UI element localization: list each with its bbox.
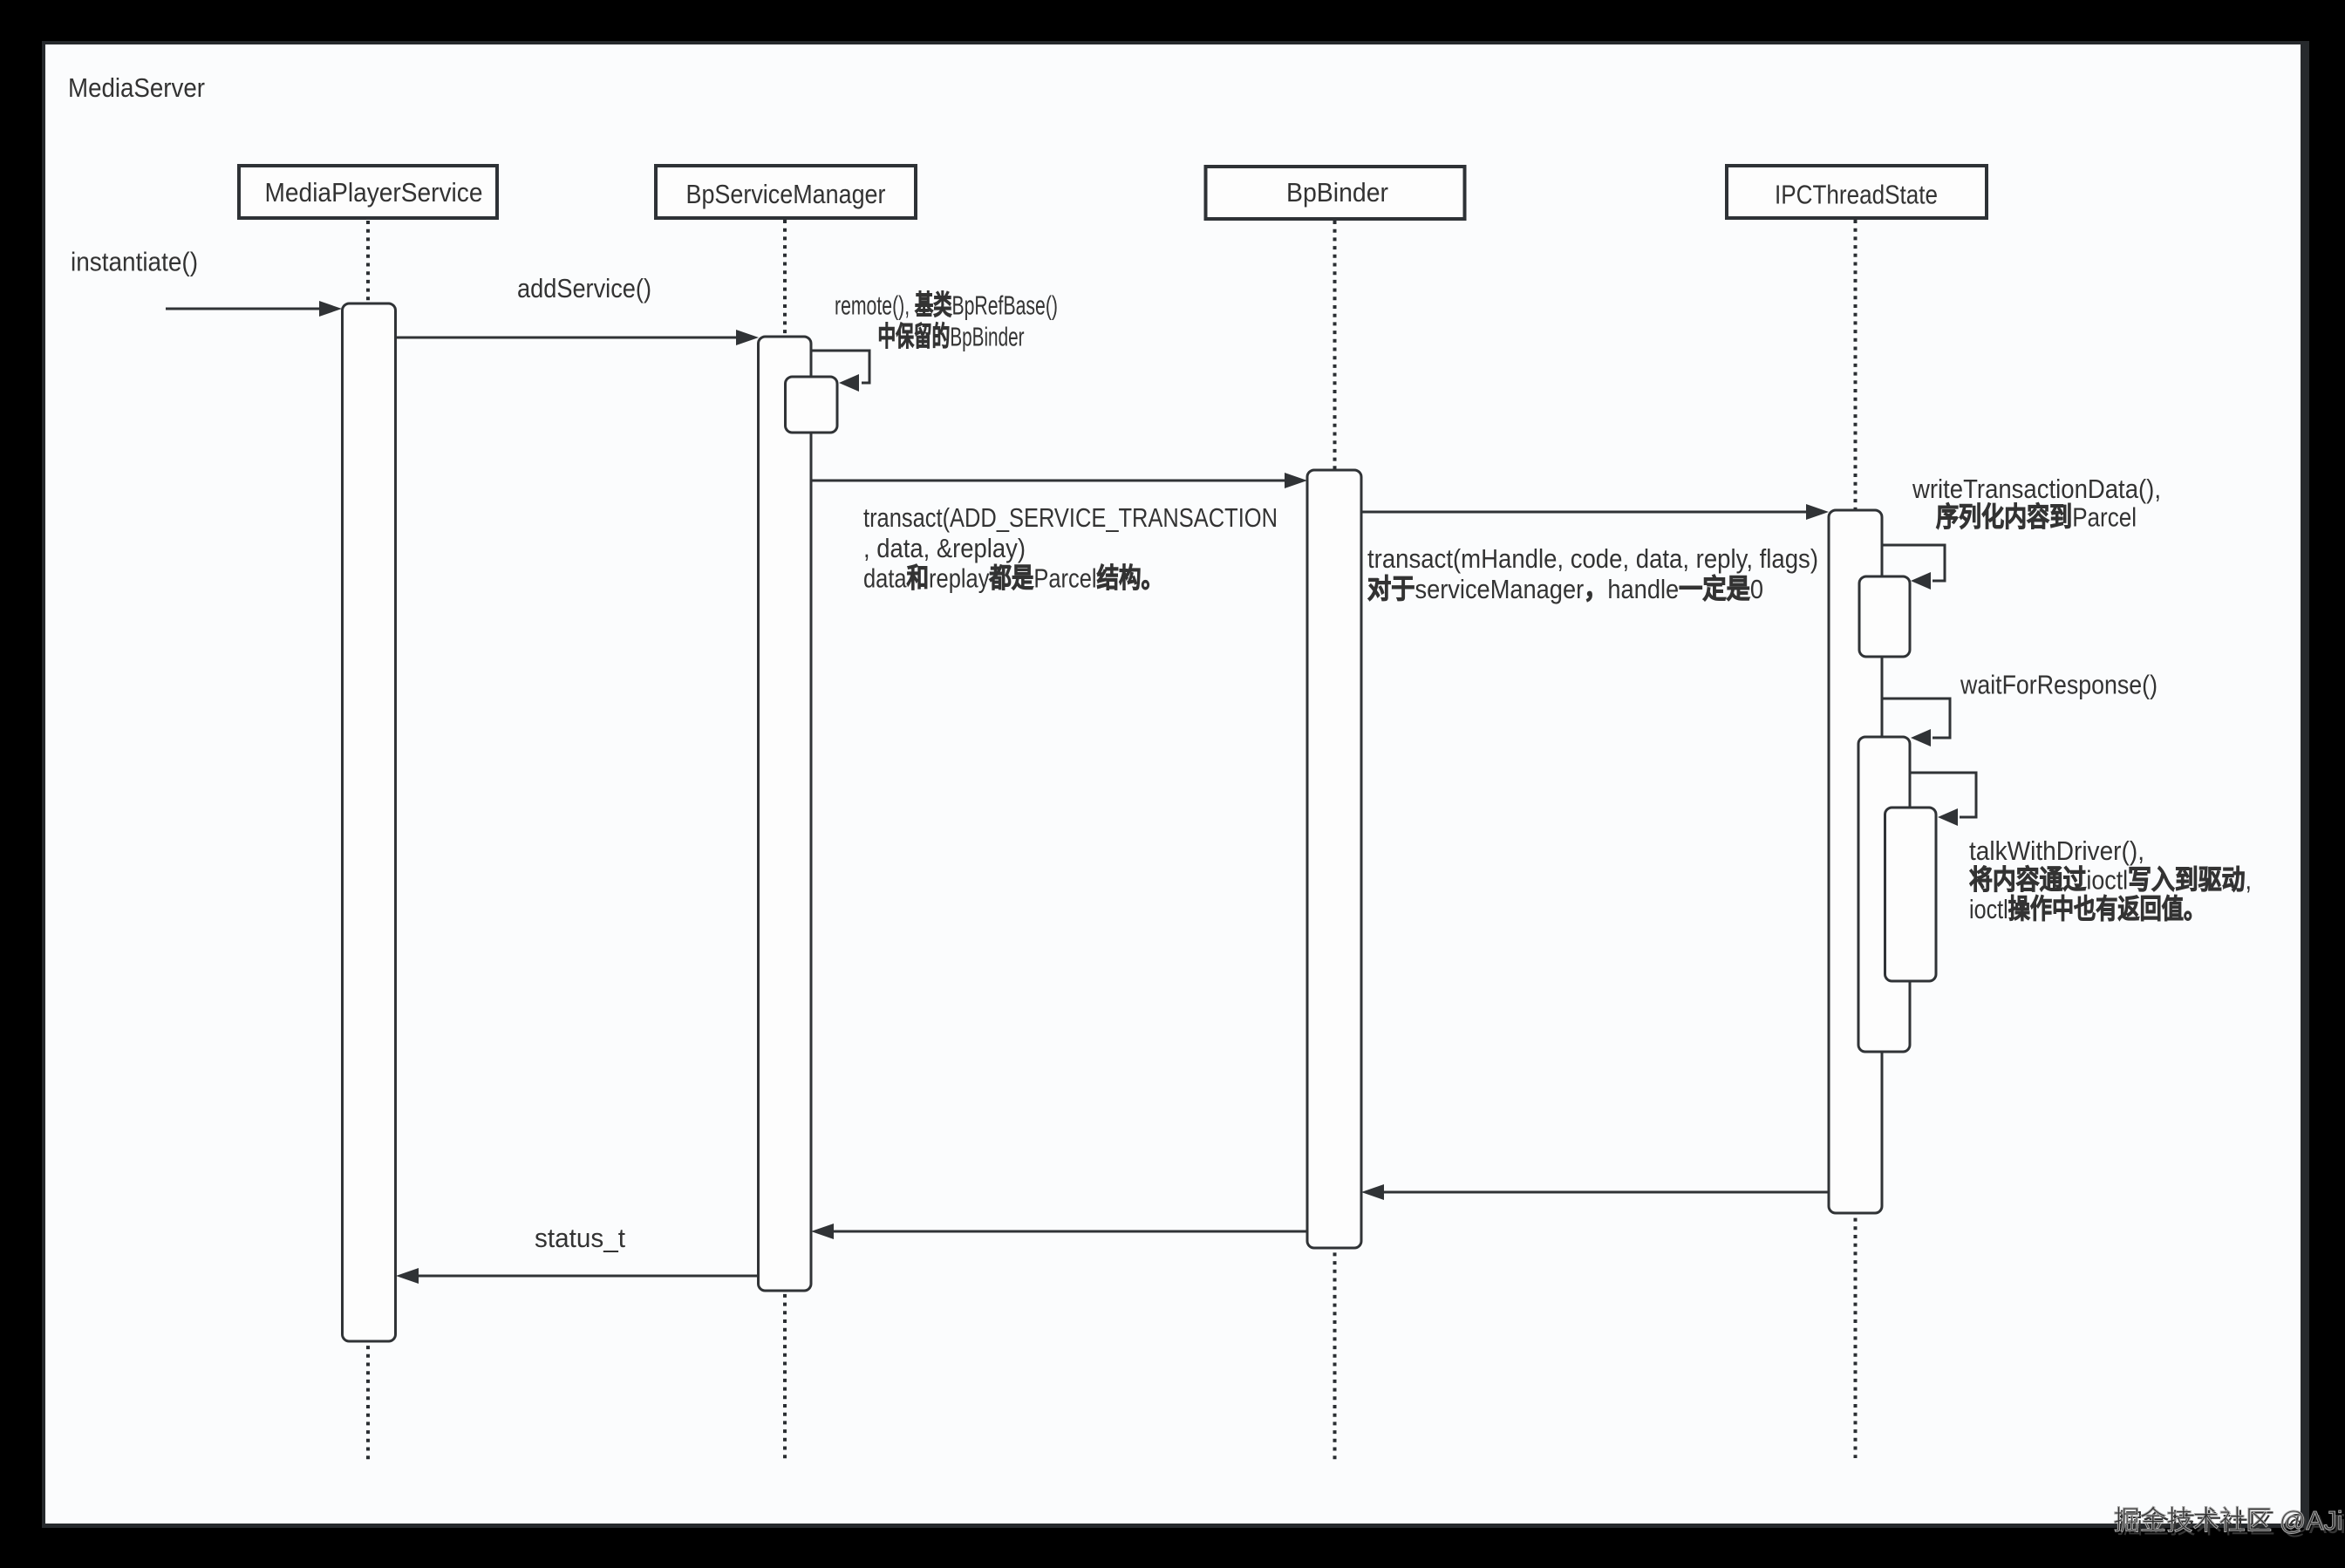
svg-text:序列化内容到Parcel: 序列化内容到Parcel: [1936, 502, 2137, 533]
svg-text:addService(): addService(): [517, 273, 651, 303]
svg-text:transact(mHandle, code, data,: transact(mHandle, code, data, reply, fla…: [1367, 543, 1818, 574]
svg-text:, data, &replay): , data, &replay): [863, 533, 1026, 563]
svg-text:data和replay都是Parcel结构。: data和replay都是Parcel结构。: [863, 563, 1163, 594]
svg-text:talkWithDriver(),: talkWithDriver(),: [1969, 835, 2144, 866]
svg-text:中保留的BpBinder: 中保留的BpBinder: [878, 322, 1025, 352]
svg-text:MediaServer: MediaServer: [68, 72, 205, 103]
svg-text:transact(ADD_SERVICE_TRANSACTI: transact(ADD_SERVICE_TRANSACTION: [863, 502, 1278, 533]
svg-text:remote(), 基类BpRefBase(): remote(), 基类BpRefBase(): [835, 290, 1058, 321]
svg-text:BpBinder: BpBinder: [1286, 177, 1388, 208]
svg-text:waitForResponse(): waitForResponse(): [1960, 670, 2158, 700]
svg-text:ioctl操作中也有返回值。: ioctl操作中也有返回值。: [1969, 894, 2205, 924]
svg-text:MediaPlayerService: MediaPlayerService: [265, 177, 483, 208]
svg-text:BpServiceManager: BpServiceManager: [686, 179, 886, 209]
svg-text:instantiate(): instantiate(): [71, 247, 198, 277]
svg-text:IPCThreadState: IPCThreadState: [1775, 180, 1938, 210]
svg-text:将内容通过ioctl写入到驱动,: 将内容通过ioctl写入到驱动,: [1969, 865, 2252, 896]
svg-text:对于serviceManager，handle一定是0: 对于serviceManager，handle一定是0: [1367, 574, 1763, 604]
svg-text:status_t: status_t: [535, 1223, 625, 1253]
svg-text:掘金技术社区 @AJi: 掘金技术社区 @AJi: [2114, 1505, 2343, 1536]
svg-text:writeTransactionData(),: writeTransactionData(),: [1912, 474, 2161, 504]
